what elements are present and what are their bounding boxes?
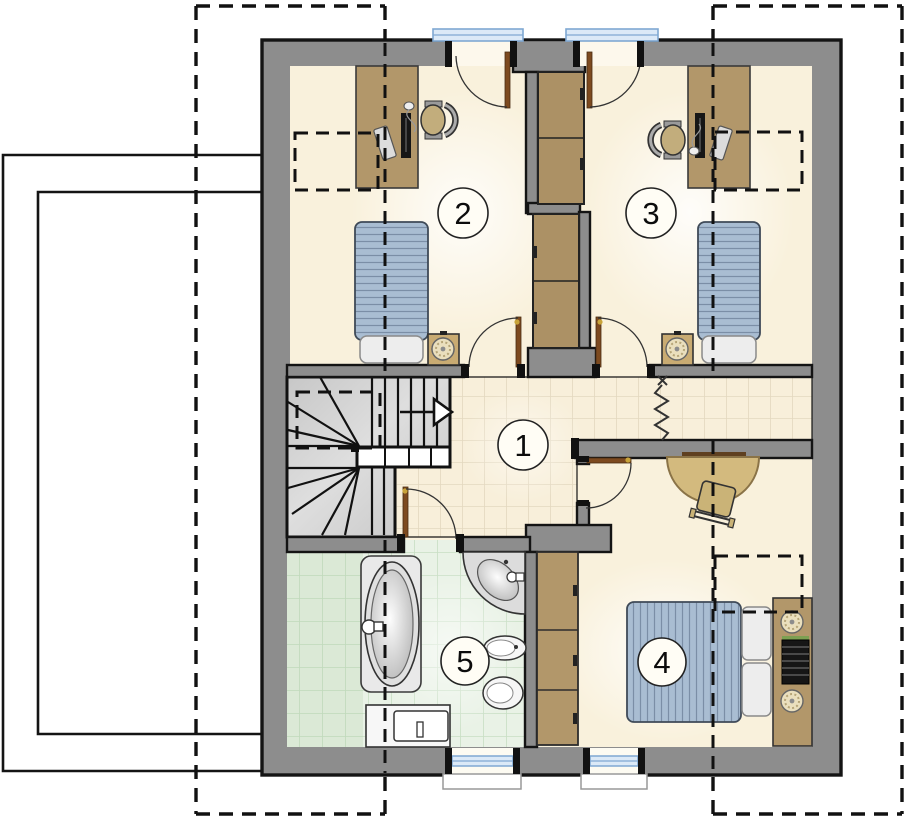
bidet bbox=[484, 636, 526, 660]
pillow bbox=[742, 607, 771, 660]
wardrobe bbox=[537, 552, 578, 745]
single-bed bbox=[698, 222, 760, 340]
room-label-1: 1 bbox=[498, 420, 548, 470]
handrail bbox=[357, 447, 450, 467]
headboard-lamp bbox=[781, 690, 803, 712]
headboard-lamp bbox=[781, 611, 803, 633]
newel-post bbox=[351, 444, 359, 452]
radiator bbox=[782, 636, 809, 684]
washing-machine bbox=[366, 705, 450, 747]
room-label-3: 3 bbox=[626, 188, 676, 238]
pillow bbox=[360, 336, 423, 363]
mouse bbox=[689, 147, 699, 155]
nightstand bbox=[662, 331, 693, 365]
room-4-number: 4 bbox=[653, 645, 670, 680]
room-1-number: 1 bbox=[514, 428, 531, 463]
floor-plan: 1 2 3 4 5 bbox=[0, 0, 905, 819]
window-room4 bbox=[581, 748, 647, 789]
room-label-2: 2 bbox=[438, 188, 488, 238]
window-bathroom bbox=[443, 748, 521, 789]
nightstand bbox=[428, 331, 459, 365]
mouse bbox=[404, 102, 414, 110]
floor-plan-page: 1 2 3 4 5 bbox=[0, 0, 905, 819]
room-5-number: 5 bbox=[456, 644, 473, 679]
pillow bbox=[702, 336, 756, 363]
room-3-number: 3 bbox=[642, 196, 659, 231]
single-bed bbox=[355, 222, 428, 340]
bathroom-shower-zone bbox=[287, 540, 363, 747]
toilet bbox=[483, 677, 523, 709]
room-label-5: 5 bbox=[441, 637, 489, 685]
pillow bbox=[742, 663, 771, 716]
room-label-4: 4 bbox=[638, 638, 686, 686]
room-2-number: 2 bbox=[454, 196, 471, 231]
